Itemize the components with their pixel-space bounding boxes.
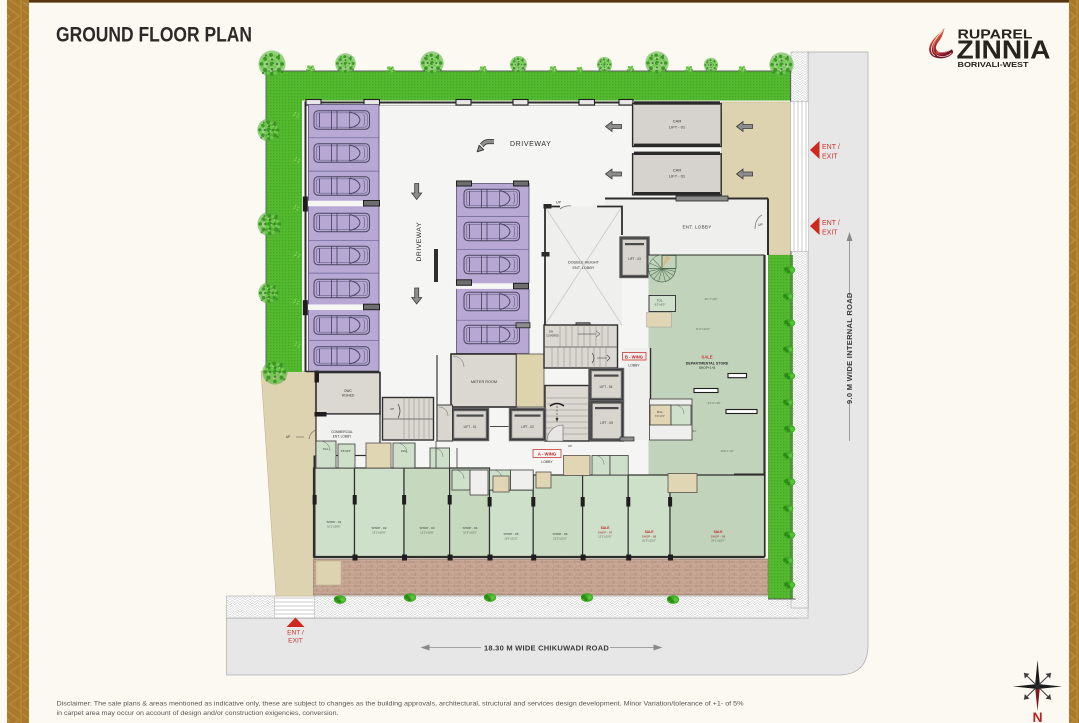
svg-text:9'-6"x19'6": 9'-6"x19'6": [696, 327, 710, 331]
svg-text:ENT. LOBBY: ENT. LOBBY: [333, 435, 352, 439]
svg-text:SHOP - 06: SHOP - 06: [553, 532, 568, 536]
svg-text:SHOP - 04: SHOP - 04: [463, 526, 478, 530]
svg-text:46'-7"x65': 46'-7"x65': [704, 297, 717, 301]
svg-text:UP: UP: [556, 201, 562, 205]
svg-text:DOUBLE HEIGHT: DOUBLE HEIGHT: [568, 261, 600, 265]
svg-text:PLG.: PLG.: [401, 449, 407, 453]
svg-text:9.0 M WIDE INTERNAL ROAD: 9.0 M WIDE INTERNAL ROAD: [845, 292, 854, 404]
svg-text:COMMERCIAL: COMMERCIAL: [331, 430, 353, 434]
svg-text:10'5"x28'6": 10'5"x28'6": [463, 531, 477, 535]
svg-text:UP: UP: [758, 223, 763, 227]
svg-text:SALE: SALE: [645, 530, 655, 534]
svg-text:SHOP+1+8: SHOP+1+8: [699, 366, 716, 370]
svg-text:LIFT - 04: LIFT - 04: [600, 385, 613, 389]
svg-text:LOBBY: LOBBY: [541, 460, 553, 464]
svg-text:UP: UP: [286, 435, 290, 439]
svg-text:LIFT - 01: LIFT - 01: [669, 125, 686, 130]
svg-text:UP: UP: [568, 444, 572, 448]
svg-text:LOBBY: LOBBY: [628, 364, 640, 368]
svg-text:GROUND FLOOR PLAN: GROUND FLOOR PLAN: [56, 24, 252, 47]
svg-text:100'-1"x8': 100'-1"x8': [720, 449, 733, 453]
svg-text:SALE: SALE: [601, 526, 611, 530]
svg-text:6'6"x6'6": 6'6"x6'6": [655, 414, 665, 418]
svg-text:LIFT - 02: LIFT - 02: [521, 425, 534, 429]
svg-text:13'2"x25'0": 13'2"x25'0": [553, 537, 567, 541]
svg-text:34'-0"x45': 34'-0"x45': [707, 401, 720, 405]
svg-text:LIFT - 01: LIFT - 01: [669, 174, 686, 179]
svg-text:ENT. LOBBY: ENT. LOBBY: [573, 266, 595, 270]
svg-text:SALE: SALE: [701, 355, 712, 360]
svg-text:COVERED: COVERED: [546, 334, 559, 338]
svg-text:SHOP - 05: SHOP - 05: [504, 532, 519, 536]
svg-text:10'1"x28'6": 10'1"x28'6": [327, 525, 341, 529]
svg-text:ENT /: ENT /: [822, 144, 840, 151]
svg-text:SHOP - 02: SHOP - 02: [372, 526, 387, 530]
svg-text:12'2"x28'6": 12'2"x28'6": [420, 531, 434, 535]
svg-text:SHOP - 03: SHOP - 03: [420, 526, 435, 530]
svg-text:LIFT - 05: LIFT - 05: [600, 421, 613, 425]
svg-text:in carpet area may occur on ac: in carpet area may occur on account of d…: [57, 711, 339, 717]
svg-text:PLG.: PLG.: [323, 447, 329, 451]
svg-text:CAR: CAR: [673, 168, 682, 173]
svg-text:9'0"x6'0": 9'0"x6'0": [655, 303, 666, 307]
svg-text:DRIVEWAY: DRIVEWAY: [510, 141, 551, 148]
svg-text:N: N: [1032, 709, 1042, 723]
svg-text:LIFT - 01: LIFT - 01: [464, 425, 477, 429]
svg-text:DEPARTMENTAL STORE: DEPARTMENTAL STORE: [686, 362, 729, 366]
svg-text:18.30 M WIDE CHIKUWADI ROAD: 18.30 M WIDE CHIKUWADI ROAD: [484, 644, 609, 653]
svg-text:24'1"x25'0": 24'1"x25'0": [711, 539, 725, 543]
svg-text:DN: DN: [549, 330, 553, 334]
svg-text:10'9"x25'0": 10'9"x25'0": [642, 539, 656, 543]
svg-text:ENT /: ENT /: [822, 220, 840, 227]
svg-text:13'2"x28'6": 13'2"x28'6": [372, 531, 386, 535]
svg-text:ENT. LOBBY: ENT. LOBBY: [682, 225, 711, 230]
svg-text:SALE: SALE: [714, 530, 724, 534]
svg-text:W.SHED: W.SHED: [342, 394, 355, 398]
svg-text:ENT /: ENT /: [287, 630, 304, 637]
svg-text:CAR: CAR: [673, 119, 682, 124]
svg-text:DRIVEWAY: DRIVEWAY: [416, 222, 423, 262]
svg-text:UP: UP: [390, 407, 394, 411]
svg-text:EXIT: EXIT: [822, 230, 838, 237]
svg-text:EXIT: EXIT: [288, 638, 303, 645]
svg-text:PLG.: PLG.: [657, 410, 664, 414]
svg-text:ZINNIA: ZINNIA: [957, 35, 1051, 65]
svg-text:Disclaimer: The sale plans & a: Disclaimer: The sale plans & areas menti…: [57, 702, 745, 708]
svg-text:EXIT: EXIT: [822, 154, 838, 161]
svg-text:DWC: DWC: [344, 389, 352, 393]
svg-text:B - WING: B - WING: [625, 355, 643, 360]
svg-text:METER ROOM: METER ROOM: [471, 380, 497, 384]
svg-text:BORIVALI-WEST: BORIVALI-WEST: [958, 62, 1030, 69]
svg-text:11'6"x22'2": 11'6"x22'2": [504, 537, 518, 541]
svg-text:SHOP - 01: SHOP - 01: [327, 520, 342, 524]
svg-text:12'2"x25'0": 12'2"x25'0": [598, 535, 612, 539]
svg-text:6'6"x6'6": 6'6"x6'6": [341, 449, 351, 453]
svg-text:A - WING: A - WING: [538, 452, 557, 457]
svg-text:LIFT - 03: LIFT - 03: [628, 257, 641, 261]
